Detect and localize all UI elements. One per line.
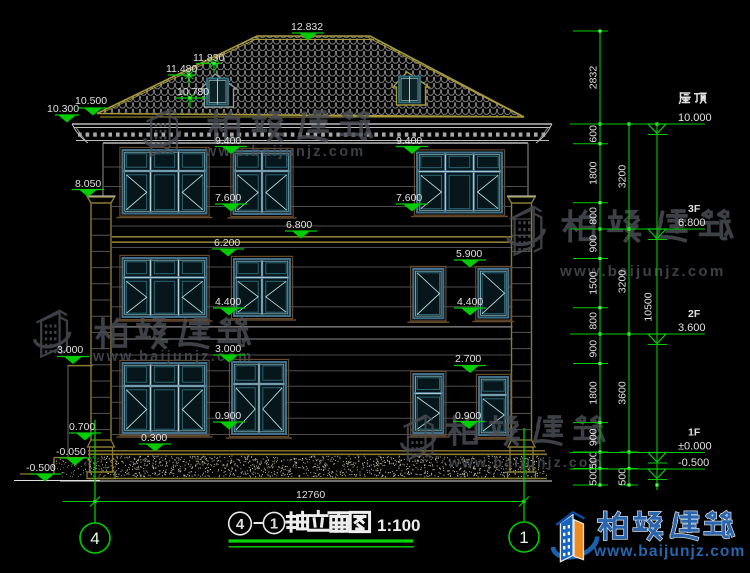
svg-text:3600: 3600 [617, 381, 629, 405]
svg-text:0.900: 0.900 [215, 410, 241, 422]
svg-text:1800: 1800 [588, 381, 600, 405]
svg-text:10.000: 10.000 [678, 112, 712, 124]
svg-text:500: 500 [617, 468, 629, 486]
svg-text:600: 600 [588, 125, 600, 143]
svg-text:10.780: 10.780 [177, 86, 209, 98]
svg-text:11.830: 11.830 [193, 52, 224, 64]
svg-text:12.832: 12.832 [291, 21, 323, 33]
svg-text:0.300: 0.300 [141, 432, 167, 444]
svg-text:-0.050: -0.050 [56, 446, 86, 458]
svg-text:10.500: 10.500 [75, 95, 107, 107]
svg-text:3200: 3200 [617, 165, 629, 189]
svg-text:1F: 1F [688, 427, 701, 439]
svg-text:4: 4 [236, 516, 245, 533]
svg-text:3F: 3F [688, 203, 701, 215]
svg-text:-0.500: -0.500 [678, 457, 709, 469]
svg-text:900: 900 [588, 340, 600, 358]
svg-text:www.baijunjz.com: www.baijunjz.com [448, 454, 604, 470]
svg-text:900: 900 [588, 428, 600, 446]
svg-text:3.000: 3.000 [215, 343, 241, 355]
svg-text:900: 900 [588, 235, 600, 253]
svg-text:1800: 1800 [588, 161, 600, 185]
svg-text:1: 1 [519, 528, 528, 547]
svg-text:10.300: 10.300 [47, 103, 79, 115]
svg-text:6.800: 6.800 [286, 219, 312, 231]
svg-text:9.400: 9.400 [396, 135, 422, 147]
svg-text:4.400: 4.400 [457, 296, 483, 308]
svg-text:www.baijunjz.com: www.baijunjz.com [593, 543, 745, 560]
svg-text:0.700: 0.700 [69, 421, 95, 433]
svg-text:500: 500 [588, 451, 600, 469]
svg-text:4: 4 [90, 529, 99, 548]
svg-text:±0.000: ±0.000 [678, 441, 712, 453]
svg-text:2F: 2F [688, 308, 701, 320]
svg-text:6.200: 6.200 [214, 237, 240, 249]
svg-text:3.600: 3.600 [678, 322, 706, 334]
svg-text:-0.500: -0.500 [26, 462, 56, 474]
svg-text:0.900: 0.900 [455, 410, 481, 422]
svg-text:12760: 12760 [296, 489, 325, 501]
svg-text:7.600: 7.600 [215, 192, 241, 204]
svg-text:2832: 2832 [588, 66, 600, 90]
svg-text:www.baijunjz.com: www.baijunjz.com [559, 263, 725, 280]
svg-text:2.700: 2.700 [455, 353, 481, 365]
svg-text:3.000: 3.000 [57, 344, 83, 356]
svg-text:800: 800 [588, 207, 600, 225]
svg-text:1:100: 1:100 [377, 516, 420, 535]
svg-text:11.480: 11.480 [166, 63, 197, 75]
svg-text:8.050: 8.050 [75, 178, 101, 190]
svg-text:800: 800 [588, 312, 600, 330]
svg-text:1500: 1500 [588, 271, 600, 295]
svg-text:10500: 10500 [643, 292, 655, 321]
svg-text:3200: 3200 [617, 270, 629, 294]
svg-text:9.400: 9.400 [215, 135, 241, 147]
svg-text:500: 500 [588, 468, 600, 486]
svg-text:1: 1 [270, 516, 278, 533]
svg-text:7.600: 7.600 [396, 192, 422, 204]
svg-text:5.900: 5.900 [456, 248, 482, 260]
svg-text:4.400: 4.400 [215, 296, 241, 308]
svg-text:6.800: 6.800 [678, 217, 706, 229]
